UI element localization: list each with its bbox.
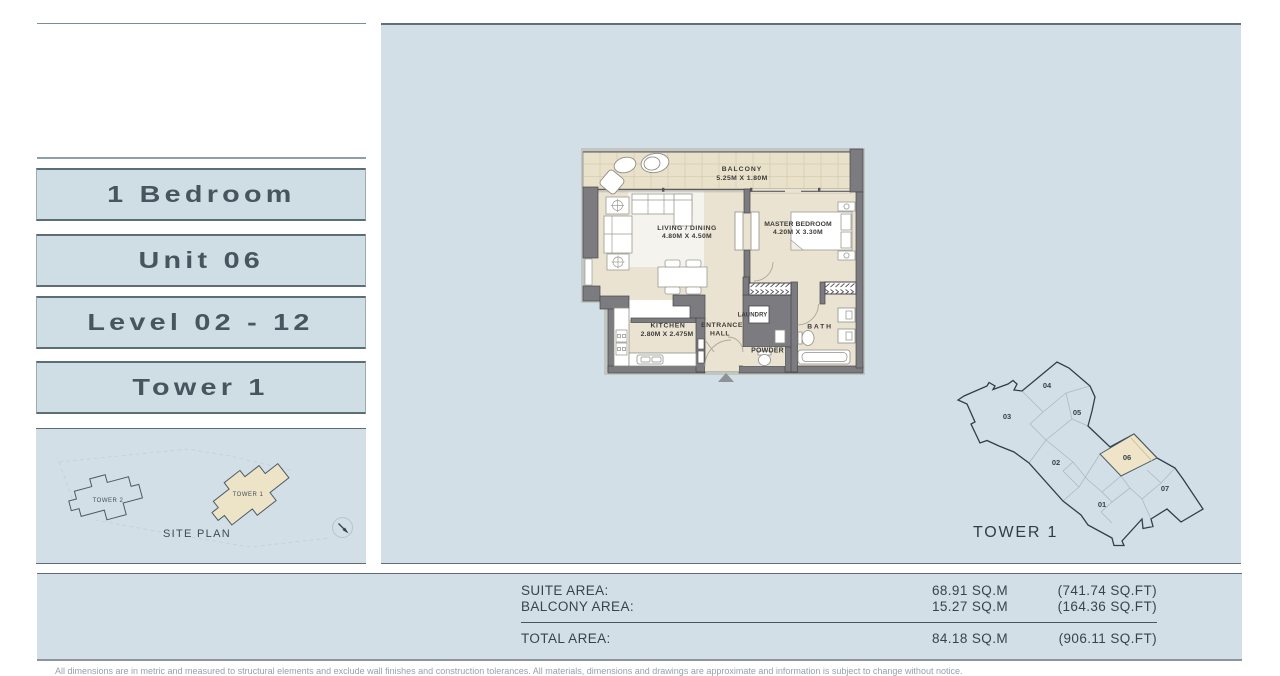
svg-text:04: 04 xyxy=(1043,381,1052,390)
svg-text:LIVING / DINING: LIVING / DINING xyxy=(657,225,717,232)
svg-text:TOWER 1: TOWER 1 xyxy=(233,492,264,498)
svg-text:TOWER 2: TOWER 2 xyxy=(93,498,124,504)
svg-text:01: 01 xyxy=(1098,500,1106,509)
svg-text:5.25M X 1.80M: 5.25M X 1.80M xyxy=(716,175,767,182)
svg-text:06: 06 xyxy=(1123,453,1131,462)
svg-text:2.80M X 2.475M: 2.80M X 2.475M xyxy=(641,331,694,338)
svg-text:05: 05 xyxy=(1073,408,1081,417)
svg-text:02: 02 xyxy=(1052,458,1060,467)
svg-text:SITE PLAN: SITE PLAN xyxy=(163,528,231,540)
svg-text:4.20M X 3.30M: 4.20M X 3.30M xyxy=(773,229,823,236)
svg-text:POWDER: POWDER xyxy=(751,348,784,355)
svg-text:BATH: BATH xyxy=(807,324,833,331)
svg-text:KITCHEN: KITCHEN xyxy=(650,323,685,330)
svg-text:07: 07 xyxy=(1161,484,1169,493)
svg-text:03: 03 xyxy=(1003,412,1011,421)
svg-text:MASTER BEDROOM: MASTER BEDROOM xyxy=(764,221,832,228)
svg-text:LAUNDRY: LAUNDRY xyxy=(738,313,768,319)
svg-text:HALL: HALL xyxy=(710,331,730,338)
svg-text:BALCONY: BALCONY xyxy=(722,166,763,173)
svg-text:ENTRANCE: ENTRANCE xyxy=(701,322,743,329)
svg-text:4.80M X 4.50M: 4.80M X 4.50M xyxy=(662,233,712,240)
